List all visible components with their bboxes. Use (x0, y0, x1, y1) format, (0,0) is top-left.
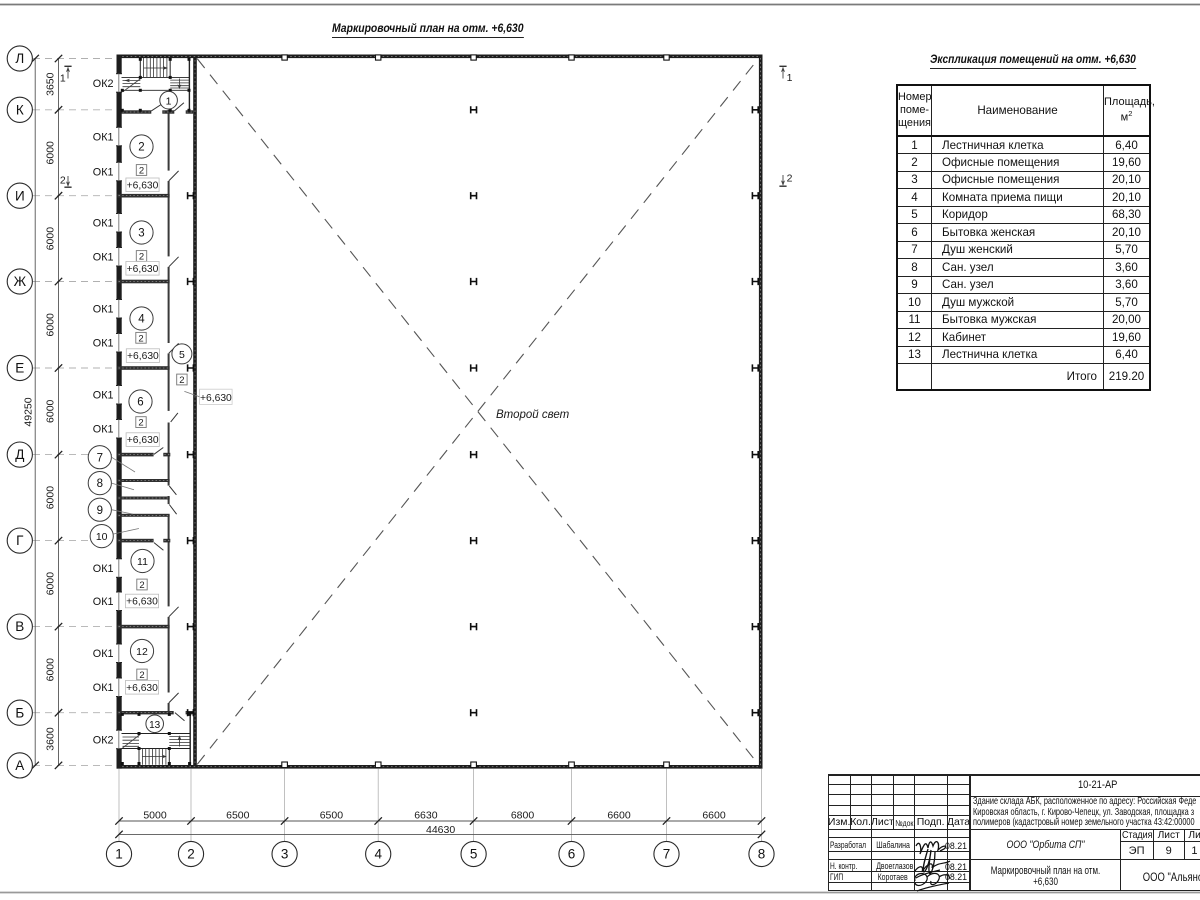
svg-text:10: 10 (96, 531, 108, 543)
svg-text:ОК1: ОК1 (93, 252, 114, 264)
svg-text:ОК2: ОК2 (93, 735, 114, 747)
svg-text:ОК1: ОК1 (93, 424, 114, 436)
svg-text:3650: 3650 (45, 72, 57, 96)
svg-text:2: 2 (138, 142, 144, 154)
svg-text:К: К (16, 102, 24, 117)
svg-text:ОК1: ОК1 (93, 596, 114, 608)
svg-text:2: 2 (139, 252, 144, 263)
svg-text:4: 4 (138, 314, 145, 326)
svg-text:44630: 44630 (426, 824, 455, 836)
svg-text:12: 12 (136, 646, 148, 658)
svg-text:+6,630: +6,630 (200, 393, 232, 404)
svg-text:Ж: Ж (14, 274, 27, 289)
svg-text:2: 2 (138, 418, 143, 429)
svg-text:ОК1: ОК1 (93, 682, 114, 694)
svg-text:2: 2 (179, 375, 184, 386)
svg-text:8: 8 (97, 478, 103, 490)
svg-text:+6,630: +6,630 (126, 683, 158, 694)
svg-text:5: 5 (470, 847, 478, 862)
svg-text:8: 8 (758, 847, 766, 862)
svg-text:6500: 6500 (226, 810, 250, 822)
svg-text:+6,630: +6,630 (126, 597, 158, 608)
svg-text:7: 7 (663, 847, 671, 862)
svg-text:9: 9 (97, 505, 103, 517)
svg-text:Г: Г (16, 533, 24, 548)
svg-text:ОК1: ОК1 (93, 648, 114, 660)
svg-text:6630: 6630 (414, 810, 438, 822)
svg-text:2: 2 (138, 333, 143, 344)
svg-text:ОК1: ОК1 (93, 304, 114, 316)
svg-text:ОК1: ОК1 (93, 563, 114, 575)
svg-text:6: 6 (568, 847, 576, 862)
svg-text:6500: 6500 (320, 810, 344, 822)
svg-text:13: 13 (149, 720, 161, 731)
svg-text:6000: 6000 (45, 227, 57, 251)
svg-text:Л: Л (15, 51, 24, 66)
svg-text:1: 1 (115, 847, 123, 862)
svg-text:+6,630: +6,630 (127, 180, 159, 191)
svg-text:6000: 6000 (45, 313, 57, 337)
svg-text:3: 3 (281, 847, 289, 862)
svg-text:6000: 6000 (45, 658, 57, 682)
svg-text:49250: 49250 (23, 397, 35, 426)
svg-text:5000: 5000 (143, 810, 167, 822)
svg-text:Е: Е (15, 361, 24, 376)
svg-text:Второй свет: Второй свет (496, 409, 570, 421)
svg-text:ОК1: ОК1 (93, 167, 114, 179)
svg-text:ОК2: ОК2 (93, 78, 114, 90)
svg-text:1: 1 (787, 72, 793, 84)
svg-text:2: 2 (60, 174, 66, 186)
svg-text:+6,630: +6,630 (127, 351, 159, 362)
svg-text:6600: 6600 (607, 810, 631, 822)
svg-text:ОК1: ОК1 (93, 390, 114, 402)
svg-text:3600: 3600 (45, 727, 57, 751)
svg-text:6000: 6000 (45, 486, 57, 510)
svg-text:2: 2 (139, 580, 144, 591)
svg-text:7: 7 (97, 452, 103, 464)
svg-text:6000: 6000 (45, 572, 57, 596)
svg-text:3: 3 (138, 228, 144, 240)
svg-text:2: 2 (787, 172, 793, 184)
svg-text:6: 6 (137, 397, 143, 409)
svg-text:2: 2 (139, 166, 144, 177)
svg-text:В: В (15, 619, 24, 634)
svg-text:1: 1 (166, 95, 172, 107)
svg-text:ОК1: ОК1 (93, 338, 114, 350)
svg-text:5: 5 (179, 349, 185, 361)
svg-text:Б: Б (15, 705, 24, 720)
svg-text:6000: 6000 (45, 141, 57, 165)
svg-text:4: 4 (374, 847, 382, 862)
svg-text:+6,630: +6,630 (127, 435, 159, 446)
svg-text:А: А (15, 758, 24, 773)
svg-text:Д: Д (15, 447, 24, 462)
svg-text:1: 1 (60, 72, 66, 84)
svg-text:И: И (15, 188, 25, 203)
svg-text:ОК1: ОК1 (93, 132, 114, 144)
svg-text:6600: 6600 (702, 810, 726, 822)
svg-text:11: 11 (137, 556, 148, 568)
svg-text:ОК1: ОК1 (93, 218, 114, 230)
svg-text:2: 2 (187, 847, 195, 862)
svg-text:6000: 6000 (45, 399, 57, 423)
svg-text:2: 2 (139, 670, 144, 681)
svg-text:+6,630: +6,630 (127, 264, 159, 275)
svg-text:6800: 6800 (511, 810, 535, 822)
